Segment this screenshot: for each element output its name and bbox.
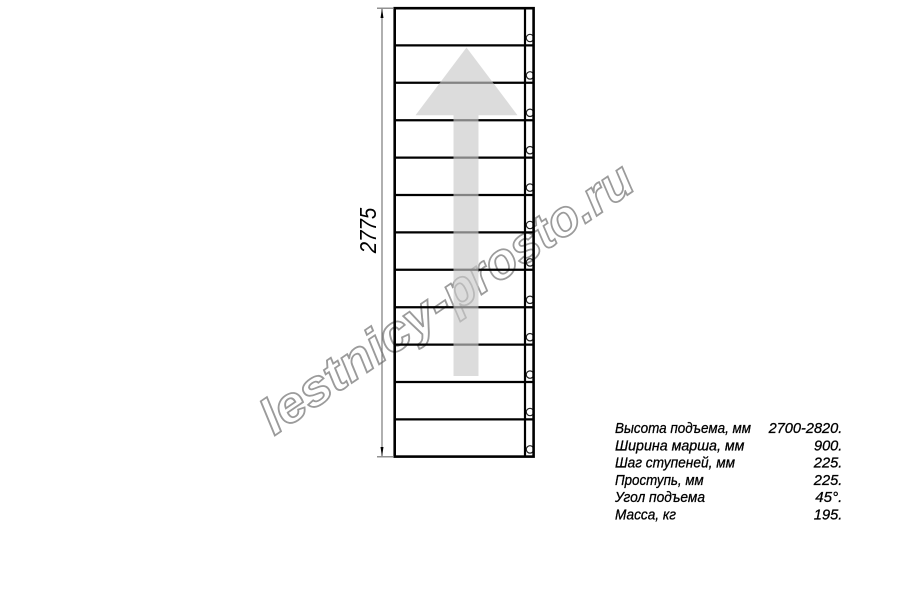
svg-text:Шаг ступеней, мм: Шаг ступеней, мм	[615, 455, 736, 472]
svg-text:Высота подъема, мм: Высота подъема, мм	[615, 420, 752, 437]
svg-text:900.: 900.	[814, 437, 842, 454]
svg-text:225.: 225.	[813, 455, 842, 472]
svg-text:45°.: 45°.	[815, 489, 842, 506]
svg-text:Проступь, мм: Проступь, мм	[615, 472, 704, 489]
svg-text:Масса, кг: Масса, кг	[615, 507, 676, 524]
svg-text:Ширина марша, мм: Ширина марша, мм	[615, 437, 745, 454]
svg-text:225.: 225.	[813, 472, 842, 489]
svg-text:2775: 2775	[355, 207, 381, 254]
svg-text:Угол подъема: Угол подъема	[614, 489, 705, 506]
svg-text:2700-2820.: 2700-2820.	[768, 420, 843, 437]
svg-text:195.: 195.	[814, 507, 843, 524]
